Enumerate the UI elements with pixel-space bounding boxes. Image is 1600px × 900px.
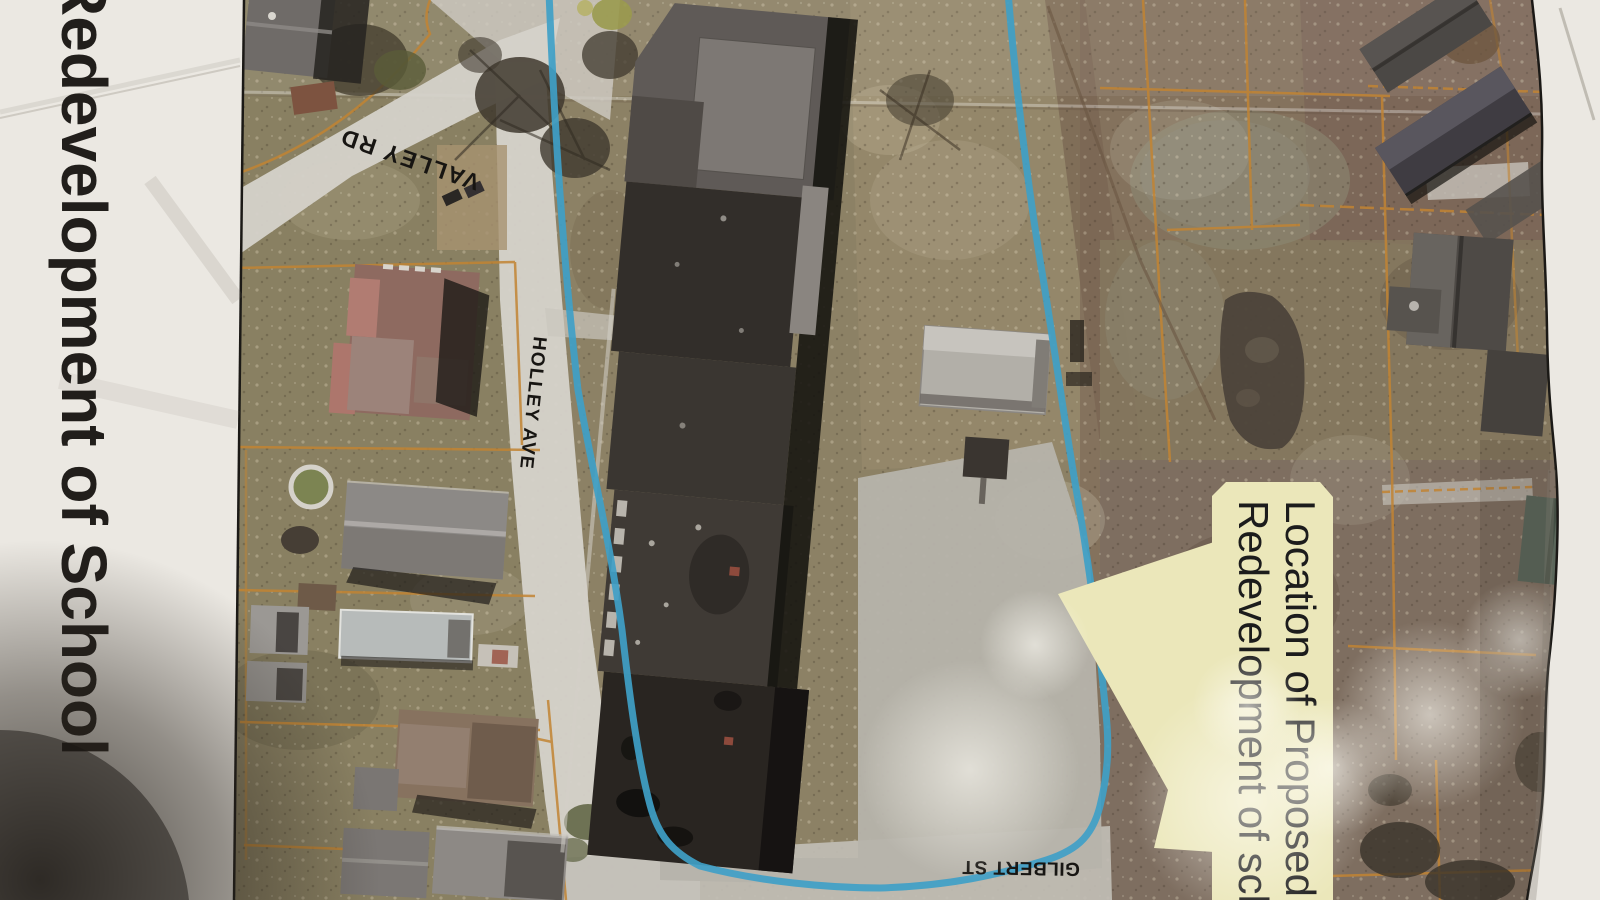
mobile-home (339, 610, 475, 671)
bus-garage (919, 326, 1050, 415)
flyer-photo-canvas: VALLEY RD HOLLEY AVE GILBERT ST Location… (0, 0, 1600, 900)
photographed-flyer: VALLEY RD HOLLEY AVE GILBERT ST Location… (0, 0, 1600, 900)
house-roof-brown (391, 709, 542, 829)
house-roof (432, 825, 568, 900)
aerial-map-photo: VALLEY RD HOLLEY AVE GILBERT ST Location… (220, 0, 1584, 900)
backyard-pool (291, 467, 331, 507)
house-roof (241, 0, 370, 84)
house-roof-red (329, 261, 491, 423)
